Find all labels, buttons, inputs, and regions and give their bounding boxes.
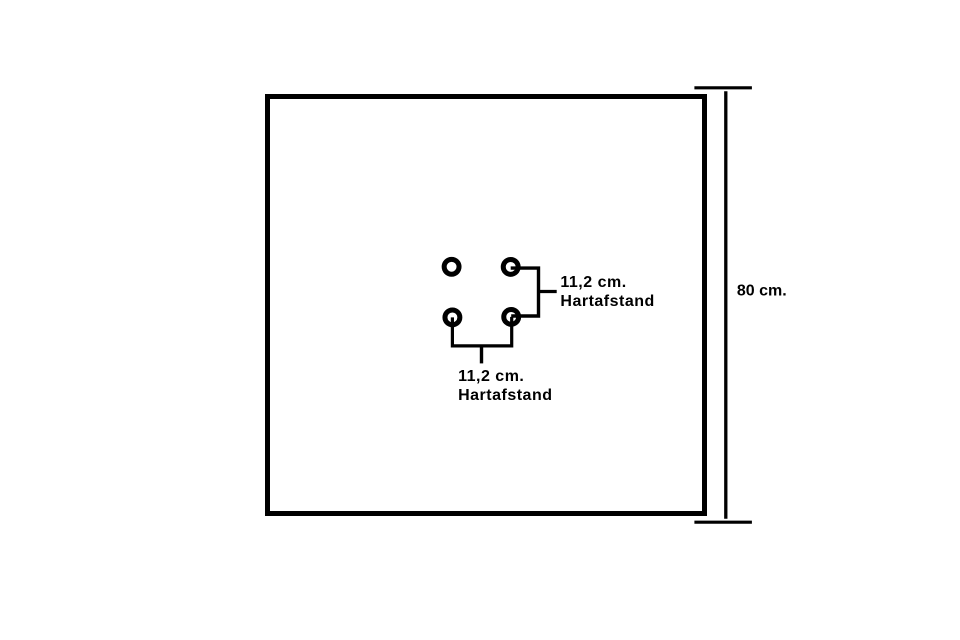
- svg-text:11,2 cm.: 11,2 cm.: [560, 274, 626, 291]
- svg-text:Hartafstand: Hartafstand: [560, 293, 654, 310]
- svg-text:11,2 cm.: 11,2 cm.: [458, 368, 524, 385]
- svg-text:Hartafstand: Hartafstand: [458, 387, 552, 404]
- svg-text:80 cm.: 80 cm.: [737, 283, 787, 300]
